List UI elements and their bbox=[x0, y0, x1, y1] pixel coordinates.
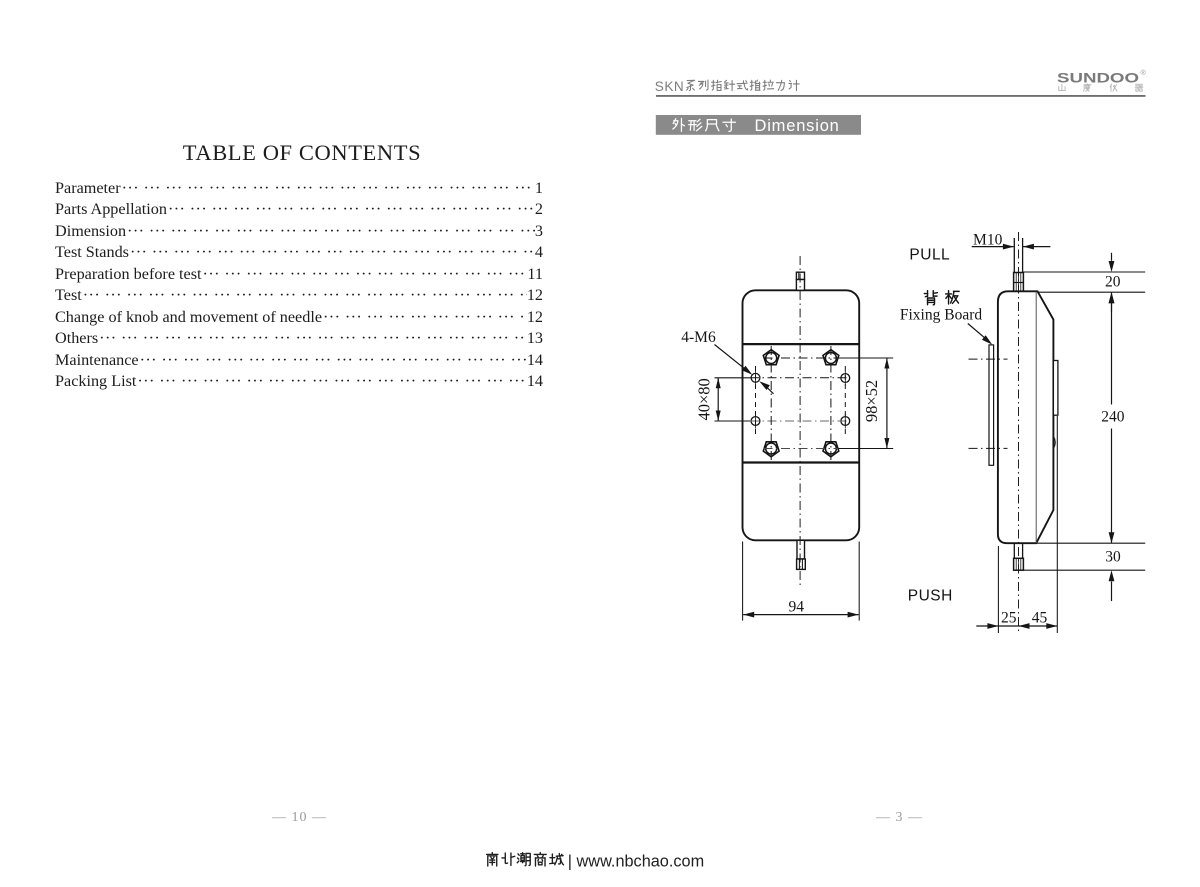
svg-text:20: 20 bbox=[1105, 274, 1121, 291]
svg-text:240: 240 bbox=[1101, 409, 1125, 426]
svg-text:30: 30 bbox=[1105, 549, 1121, 566]
svg-text:40×80: 40×80 bbox=[695, 378, 714, 420]
svg-text:PULL: PULL bbox=[909, 246, 950, 263]
svg-text:Fixing Board: Fixing Board bbox=[900, 307, 982, 324]
svg-text:25: 25 bbox=[1001, 609, 1017, 626]
svg-text:98×52: 98×52 bbox=[862, 380, 881, 422]
svg-text:45: 45 bbox=[1032, 609, 1048, 626]
svg-text:| www.nbchao.com: | www.nbchao.com bbox=[568, 853, 704, 871]
svg-text:4-M6: 4-M6 bbox=[681, 329, 716, 346]
svg-text:M10: M10 bbox=[973, 231, 1003, 248]
svg-text:SKN: SKN bbox=[655, 79, 684, 94]
svg-text:SUNDOO: SUNDOO bbox=[1057, 71, 1139, 87]
svg-text:Dimension: Dimension bbox=[755, 117, 840, 135]
svg-text:®: ® bbox=[1141, 68, 1147, 77]
svg-text:94: 94 bbox=[789, 598, 805, 615]
svg-text:PUSH: PUSH bbox=[908, 587, 953, 604]
